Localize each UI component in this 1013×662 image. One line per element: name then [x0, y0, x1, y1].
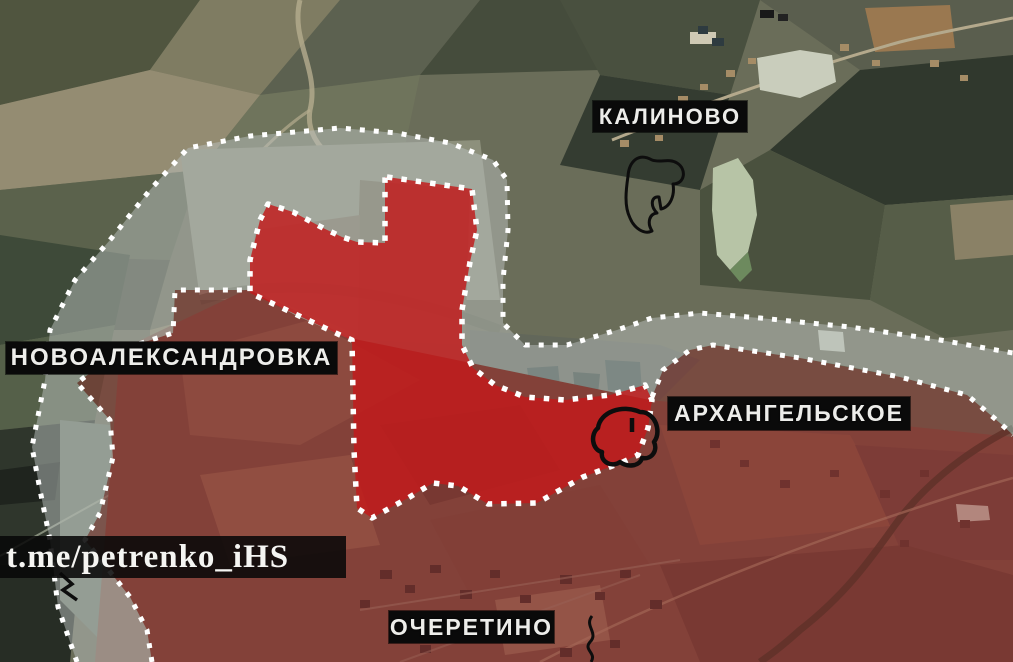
- settlement-name: КАЛИНОВО: [599, 104, 741, 130]
- settlement-label-kalinovo: КАЛИНОВО: [593, 101, 747, 132]
- settlement-name: НОВОАЛЕКСАНДРОВКА: [11, 344, 333, 372]
- settlement-label-novoaleksandrovka: НОВОАЛЕКСАНДРОВКА: [6, 342, 337, 374]
- map-screenshot: КАЛИНОВО НОВОАЛЕКСАНДРОВКА АРХАНГЕЛЬСКОЕ…: [0, 0, 1013, 662]
- settlement-label-ocheretino: ОЧЕРЕТИНО: [389, 611, 554, 643]
- settlement-name: ОЧЕРЕТИНО: [390, 614, 553, 641]
- settlement-label-arkhangelskoye: АРХАНГЕЛЬСКОЕ: [668, 397, 910, 430]
- watermark-credit: t.me/petrenko_iHS: [0, 536, 346, 578]
- watermark-text: t.me/petrenko_iHS: [6, 539, 289, 576]
- settlement-name: АРХАНГЕЛЬСКОЕ: [674, 400, 904, 427]
